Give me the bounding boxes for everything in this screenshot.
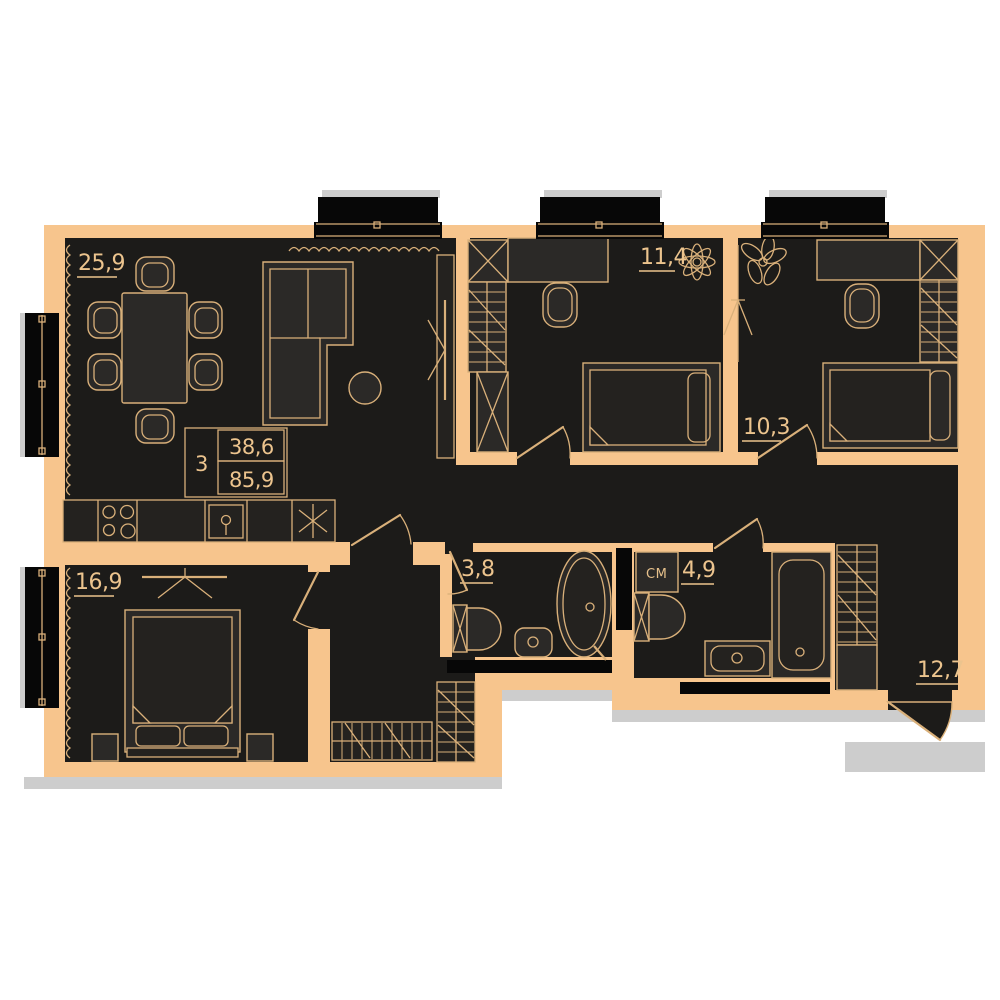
coat-rack: [332, 722, 432, 760]
single-bed: [823, 363, 958, 448]
toilet: [634, 593, 685, 641]
area-label-bedroom-114: 11,4: [640, 245, 687, 270]
dining-chair: [189, 354, 222, 390]
shelving: [920, 280, 958, 362]
nightstand: [247, 734, 273, 761]
wardrobe: [837, 545, 877, 645]
bathtub: [772, 552, 831, 678]
wardrobe: [920, 240, 958, 280]
cabinet: [837, 645, 877, 690]
washing-machine-label: СМ: [646, 567, 667, 582]
dining-chair: [88, 302, 121, 338]
desk: [508, 238, 608, 282]
rooms-count: 3: [195, 452, 208, 476]
area-label-living: 25,9: [78, 251, 125, 276]
area-label-bedroom-169: 16,9: [75, 570, 122, 595]
living-area-value: 38,6: [229, 435, 274, 459]
kitchen-counter: [63, 500, 335, 542]
wardrobe: [477, 372, 508, 452]
single-bed: [583, 363, 720, 452]
dining-chair: [136, 409, 174, 443]
wardrobe: [468, 240, 508, 282]
area-label-bathroom-38: 3,8: [461, 557, 495, 582]
window-top-2: [536, 197, 664, 239]
dining-chair: [189, 302, 222, 338]
dining-chair: [136, 257, 174, 291]
area-label-bathroom-49: 4,9: [682, 558, 716, 583]
window-top-1: [314, 197, 442, 239]
desk: [817, 240, 920, 280]
washbasin: [705, 641, 770, 676]
window-left-2: [25, 567, 59, 708]
nightstand: [92, 734, 118, 761]
window-top-3: [761, 197, 889, 239]
double-bed: [125, 610, 240, 757]
coffee-table: [349, 372, 381, 404]
washbasin: [515, 628, 552, 657]
area-label-bedroom-103: 10,3: [743, 415, 790, 440]
desk-chair: [845, 284, 879, 328]
dining-chair: [88, 354, 121, 390]
window-left-1: [25, 313, 59, 457]
wardrobe: [437, 682, 475, 762]
floorplan-page: 3 38,6 85,9 25,9: [0, 0, 1000, 1000]
area-label-hallway: 12,7: [917, 658, 964, 683]
floorplan-drawing: 3 38,6 85,9 25,9: [0, 0, 1000, 1000]
washing-machine: СМ: [636, 552, 678, 592]
shelving: [468, 282, 506, 372]
dining-table: [122, 293, 187, 403]
total-area-value: 85,9: [229, 468, 274, 492]
desk-chair: [543, 283, 577, 327]
